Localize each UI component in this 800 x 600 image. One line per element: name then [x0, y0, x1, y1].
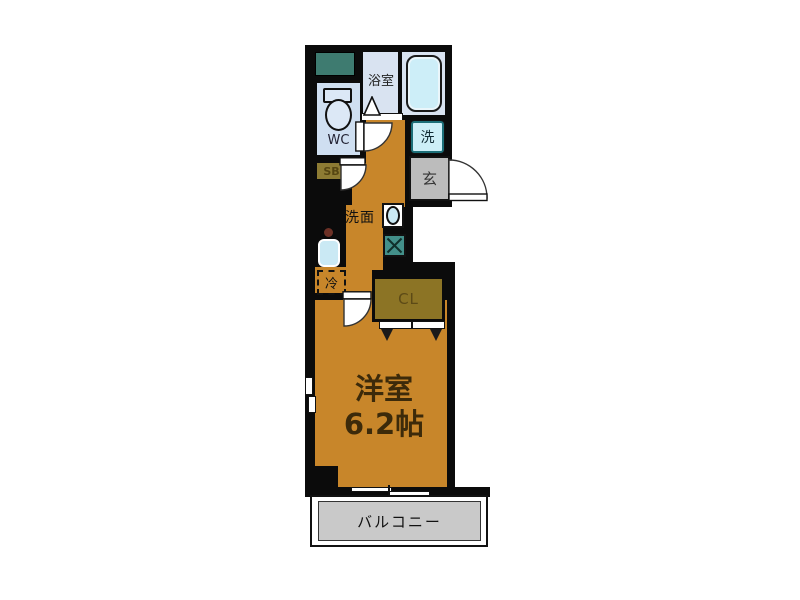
bathroom-folding-door-icon — [363, 96, 381, 116]
bathtub-icon — [406, 55, 442, 112]
closet-door-arrow-right-icon — [430, 329, 443, 342]
closet-door-arrow-left-icon — [381, 329, 394, 342]
closet-box: CL — [372, 276, 445, 322]
left-window-pane-icon — [308, 396, 316, 413]
room-size-text: 6.2帖 — [328, 407, 440, 442]
washstand-sink-icon — [386, 206, 400, 225]
balcony-window-tick — [388, 485, 390, 495]
bathroom-label: 浴室 — [363, 70, 399, 86]
room-door-swing-icon — [341, 291, 375, 328]
room-name-text: 洋室 — [328, 372, 440, 407]
washstand-label: 洗面 — [345, 207, 383, 222]
entrance-label: 玄 — [422, 168, 437, 189]
wc-door-swing-icon — [339, 157, 372, 192]
wc-label: WC — [317, 133, 360, 149]
stove-burner-icon — [324, 228, 333, 237]
closet-label: CL — [398, 290, 419, 308]
refrigerator-label: 冷 — [325, 273, 338, 292]
toilet-bowl-icon — [325, 99, 352, 131]
washer-label: 洗 — [421, 127, 435, 147]
balcony: バルコニー — [318, 501, 481, 541]
vent-unit-icon — [383, 234, 406, 257]
bathroom-door-swing-icon — [355, 121, 395, 155]
pipe-space-unit — [315, 52, 355, 76]
floor-plan: 浴室 WC 洗 玄 SB 洗面 冷 CL — [0, 0, 800, 600]
closet-door-panel-left — [379, 321, 412, 329]
washing-machine-box: 洗 — [411, 121, 444, 153]
left-window-pane-icon — [305, 377, 313, 395]
kitchen-sink-icon — [318, 239, 340, 267]
western-room-label: 洋室 6.2帖 — [328, 372, 440, 442]
entrance-room: 玄 — [409, 156, 450, 201]
entrance-door-swing-icon — [448, 156, 492, 202]
closet-door-panel-right — [412, 321, 445, 329]
balcony-window-pane-icon — [351, 487, 392, 492]
shoe-box-label: SB — [323, 165, 339, 178]
wall-notch — [305, 466, 338, 487]
balcony-label: バルコニー — [357, 511, 442, 532]
